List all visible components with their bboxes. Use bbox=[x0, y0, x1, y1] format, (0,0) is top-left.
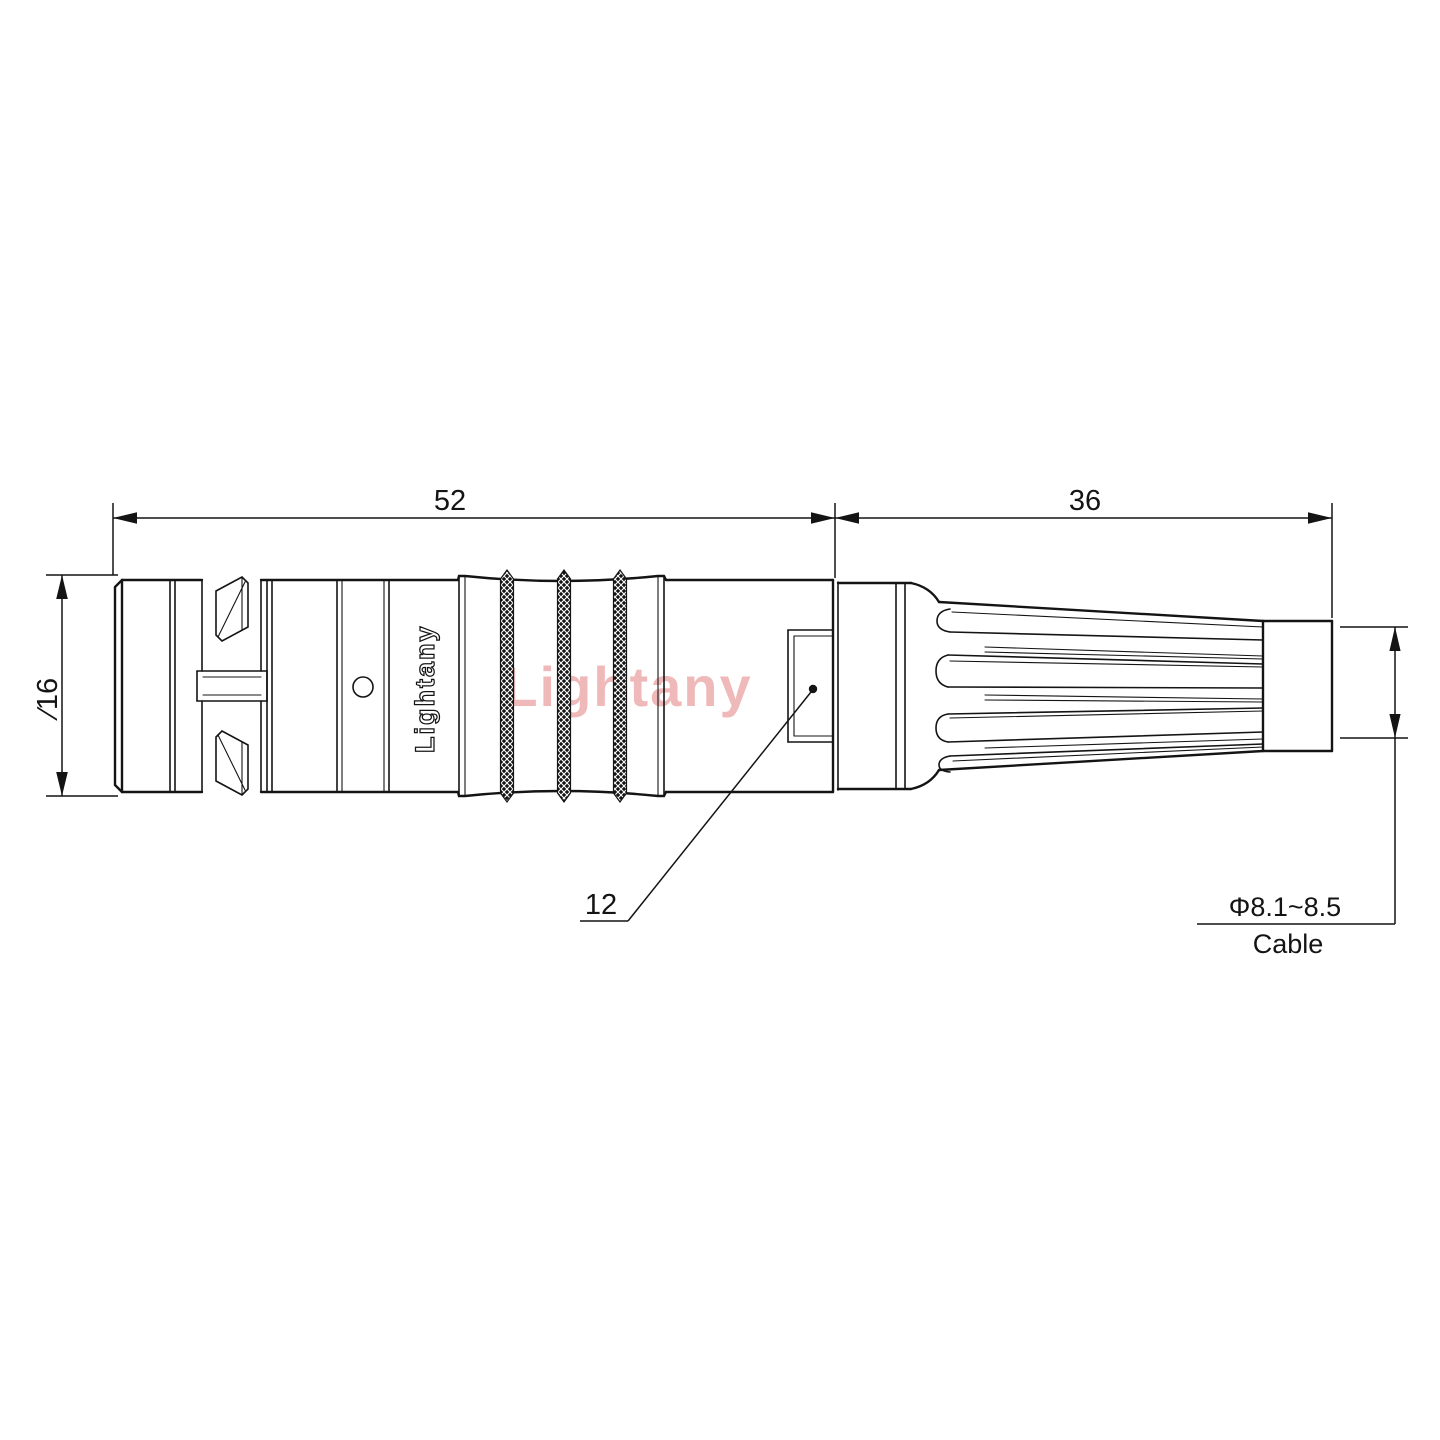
bayonet-lug-bottom bbox=[216, 731, 248, 795]
arrowhead-right-icon bbox=[811, 512, 835, 524]
knurl-strip bbox=[558, 570, 571, 802]
vent-hole bbox=[353, 677, 373, 697]
arrowhead-up-icon bbox=[56, 575, 68, 599]
cable-word-label: Cable bbox=[1253, 929, 1324, 959]
cable-sleeve bbox=[1263, 621, 1332, 751]
dimension-cable: Φ8.1~8.5 Cable bbox=[1197, 627, 1408, 959]
fin-cap bbox=[936, 714, 948, 742]
boot-shoulder-bottom bbox=[911, 770, 939, 789]
connector-drawing-svg: Lightany 52 36 ∕16 bbox=[0, 0, 1440, 1440]
leader-dot bbox=[809, 685, 817, 693]
fin-cap bbox=[937, 609, 950, 632]
boot-fins bbox=[948, 612, 1263, 761]
arrowhead-left-icon bbox=[835, 512, 859, 524]
watermark-text: Lightany bbox=[503, 655, 752, 718]
arrowhead-down-icon bbox=[1389, 714, 1400, 738]
arrowhead-up-icon bbox=[1389, 627, 1400, 651]
fin-cap bbox=[936, 655, 948, 687]
strain-relief-boot bbox=[838, 583, 1332, 789]
nut-size-label: 12 bbox=[585, 889, 617, 921]
dim-diameter-label: ∕16 bbox=[32, 678, 64, 721]
cable-range-label: Φ8.1~8.5 bbox=[1229, 892, 1341, 922]
dimension-diameter-16: ∕16 bbox=[32, 575, 118, 796]
dim-52-label: 52 bbox=[434, 485, 466, 517]
knurl-strip bbox=[501, 570, 514, 802]
boot-shoulder-top bbox=[911, 583, 939, 602]
ring-band bbox=[337, 580, 389, 792]
body-marking-text: Lightany bbox=[410, 625, 440, 754]
arrowhead-left-icon bbox=[113, 512, 137, 524]
knurl-strip bbox=[614, 570, 627, 802]
dim-36-label: 36 bbox=[1069, 485, 1101, 517]
dimension-52: 52 bbox=[113, 485, 835, 578]
dimension-36: 36 bbox=[835, 485, 1332, 618]
arrowhead-down-icon bbox=[56, 772, 68, 796]
arrowhead-right-icon bbox=[1308, 512, 1332, 524]
technical-drawing-canvas: Lightany 52 36 ∕16 bbox=[0, 0, 1440, 1440]
bayonet-lug-top bbox=[216, 577, 248, 641]
